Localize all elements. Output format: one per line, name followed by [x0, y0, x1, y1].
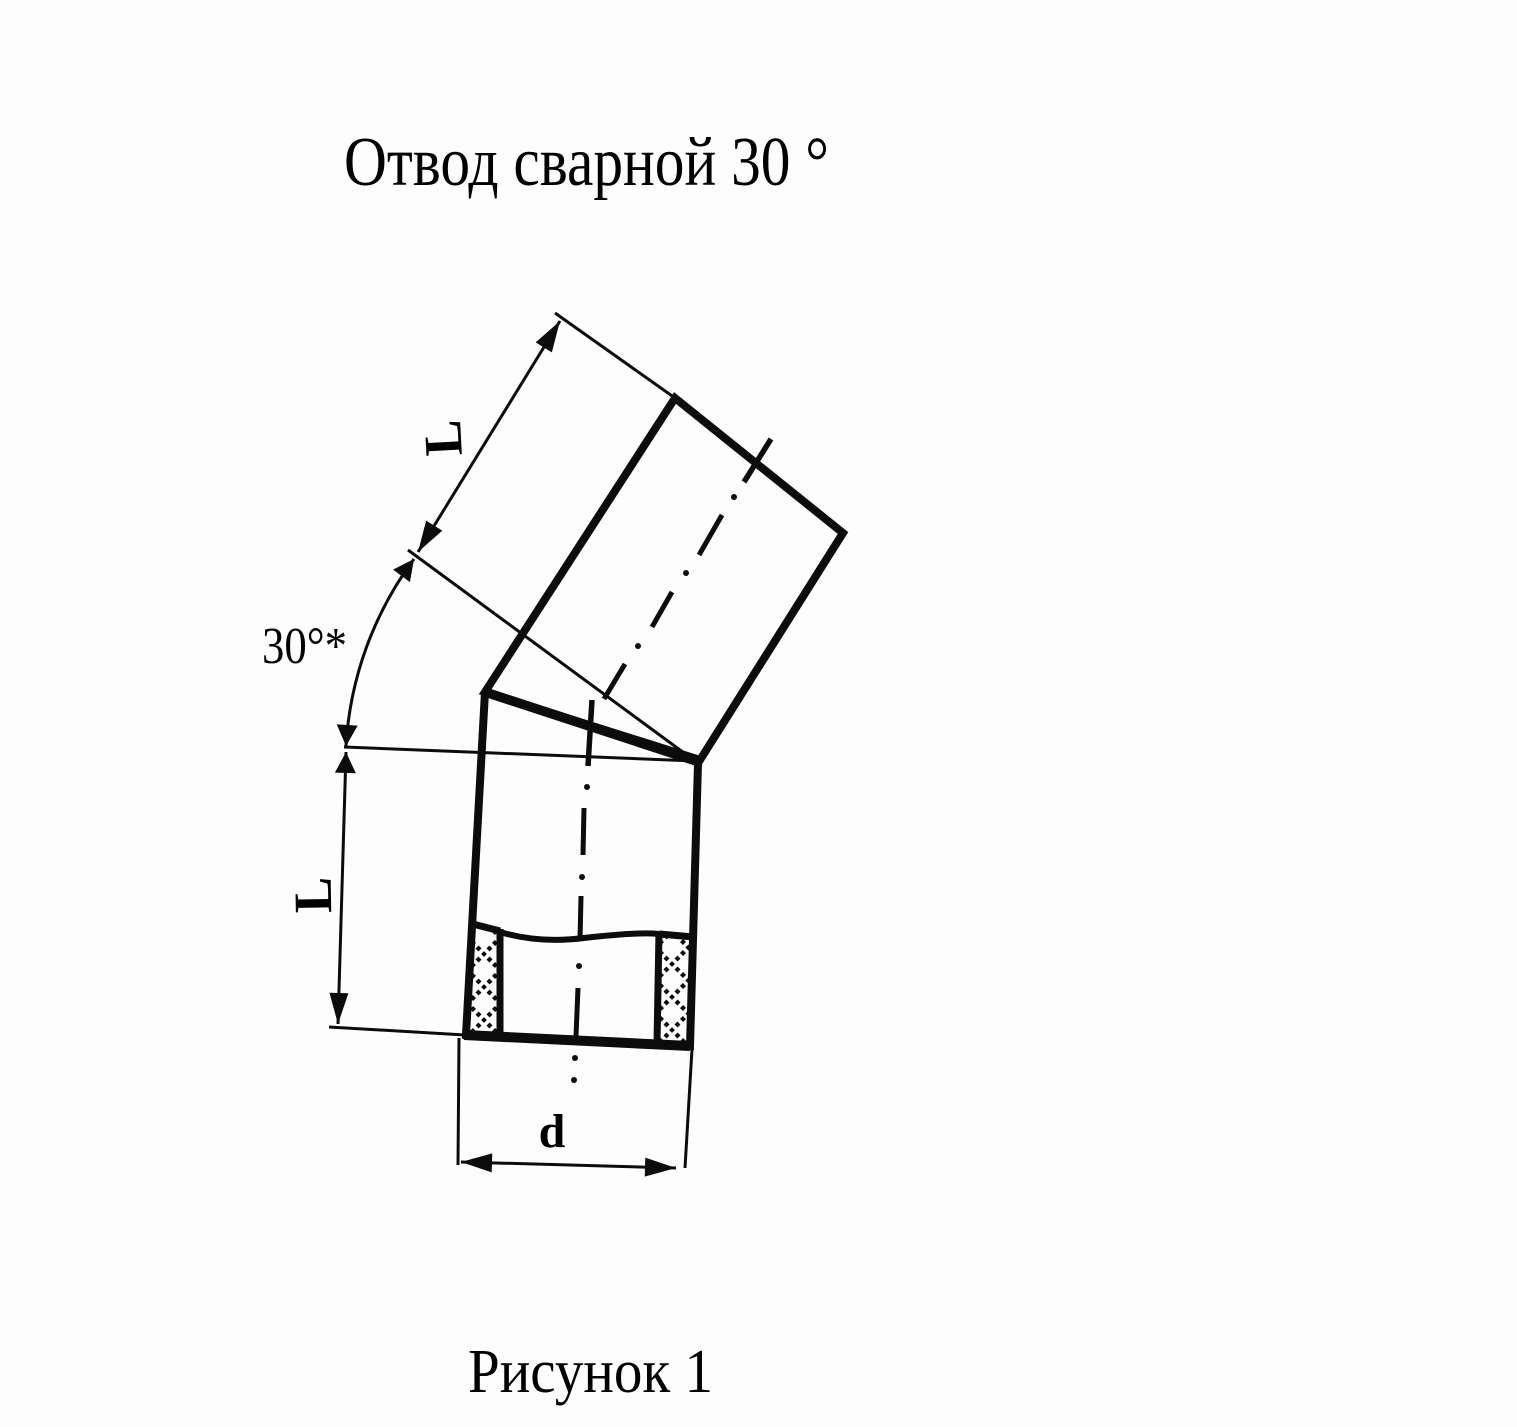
- svg-text:Рисунок 1: Рисунок 1: [468, 1338, 713, 1406]
- svg-text:L: L: [412, 418, 474, 457]
- svg-text:30°*: 30°*: [262, 618, 347, 675]
- svg-text:d: d: [539, 1105, 566, 1158]
- svg-text:Отвод сварной 30 °: Отвод сварной 30 °: [344, 124, 829, 201]
- svg-text:L: L: [283, 876, 344, 913]
